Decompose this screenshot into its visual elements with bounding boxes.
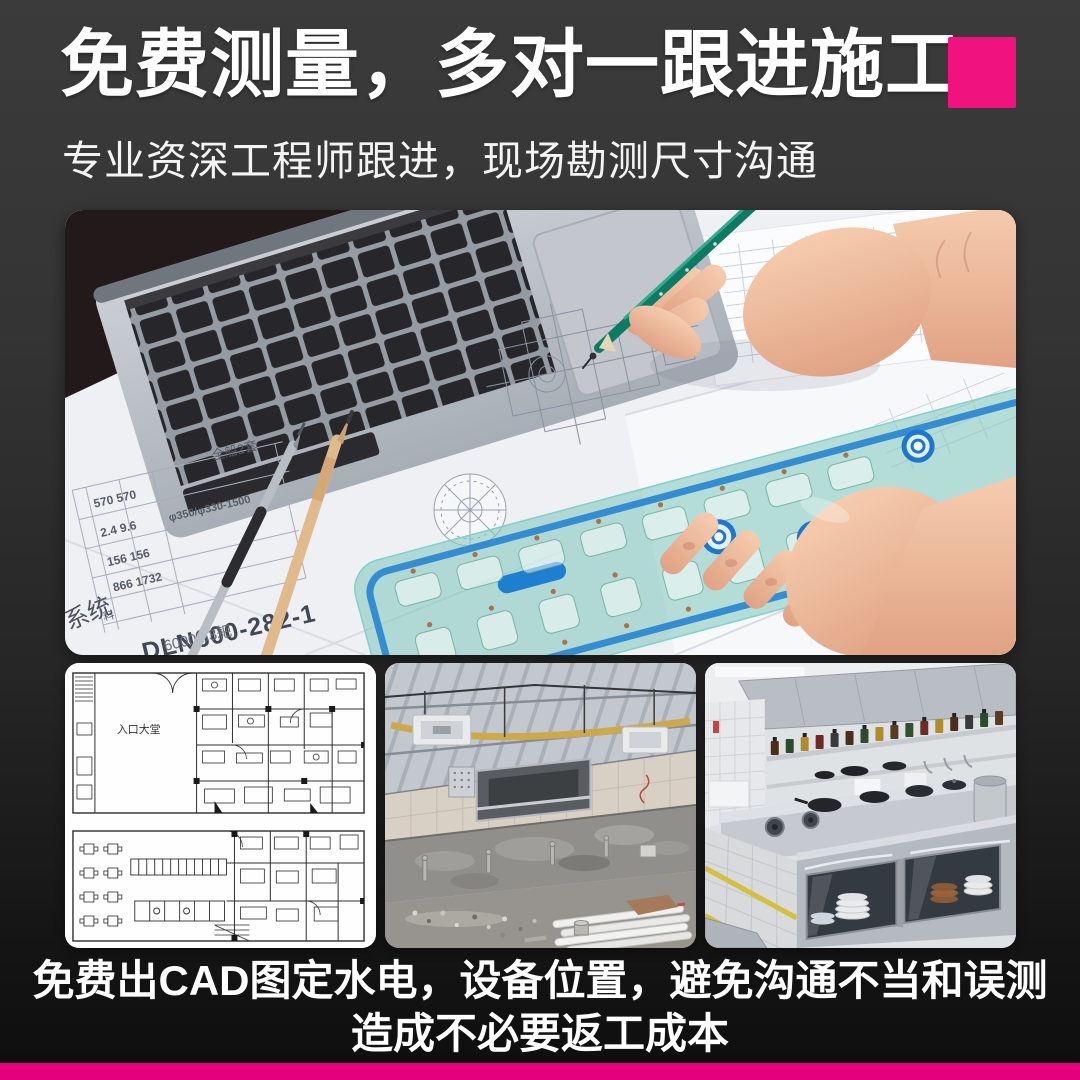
finished-kitchen-illustration [705,663,1016,948]
bucket [574,921,588,936]
entrance-label: 入口大堂 [117,722,161,736]
construction-site-illustration [385,663,696,948]
cad-floor-plan-illustration: 入口大堂 [65,663,376,948]
wall-sticker [713,721,719,733]
footer-caption-line1: 免费出CAD图定水电，设备位置，避免沟通不当和误测 [0,954,1080,1007]
page-subtitle: 专业资深工程师跟进，现场勘测尺寸沟通 [62,127,818,187]
promo-page: 免费测量，多对一跟进施工 专业资深工程师跟进，现场勘测尺寸沟通 [0,0,1080,1080]
gallery-photo-cad-plan: 入口大堂 [65,663,376,948]
white-box-2 [904,773,926,787]
stock-pot [974,776,1006,823]
gallery-photo-construction-site [385,663,696,948]
electrical-box [640,845,656,857]
wall-cabinet [709,781,749,807]
gallery-photo-finished-kitchen [705,663,1016,948]
floor-patch [405,911,505,927]
page-title: 免费测量，多对一跟进施工 [60,24,960,107]
bottom-accent-bar [0,1063,1080,1080]
gallery-row: 入口大堂 [65,663,1016,948]
hero-photo-illustration: 570 570 2.4 9.6 φ350/φ330-1500 156 156 8… [65,210,1016,655]
accent-square [948,37,1016,108]
footer-caption-line2: 造成不必要返工成本 [0,1007,1080,1060]
light-panel [715,667,805,677]
footer-caption: 免费出CAD图定水电，设备位置，避免沟通不当和误测 造成不必要返工成本 [0,954,1080,1060]
hero-photo: 570 570 2.4 9.6 φ350/φ330-1500 156 156 8… [65,210,1016,655]
